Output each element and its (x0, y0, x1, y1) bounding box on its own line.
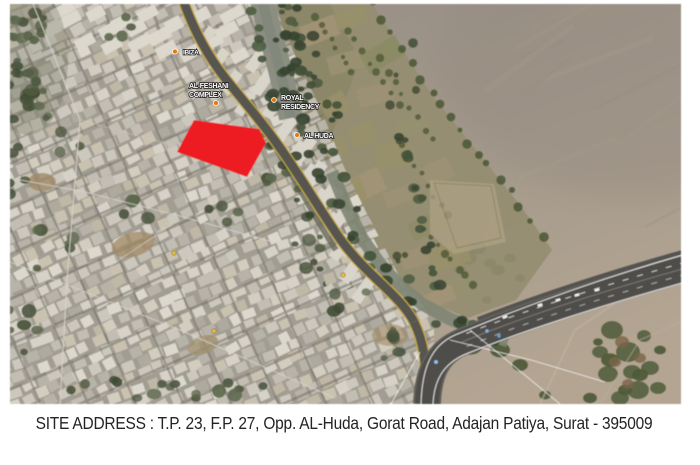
svg-text:COMPLEX: COMPLEX (189, 92, 222, 99)
svg-text:IBIZA: IBIZA (183, 50, 199, 57)
svg-text:RESIDENCY: RESIDENCY (281, 104, 320, 111)
svg-text:AL HUDA: AL HUDA (304, 133, 334, 140)
svg-text:AL-FESHANI: AL-FESHANI (189, 83, 229, 90)
svg-text:ROYAL: ROYAL (281, 95, 304, 102)
